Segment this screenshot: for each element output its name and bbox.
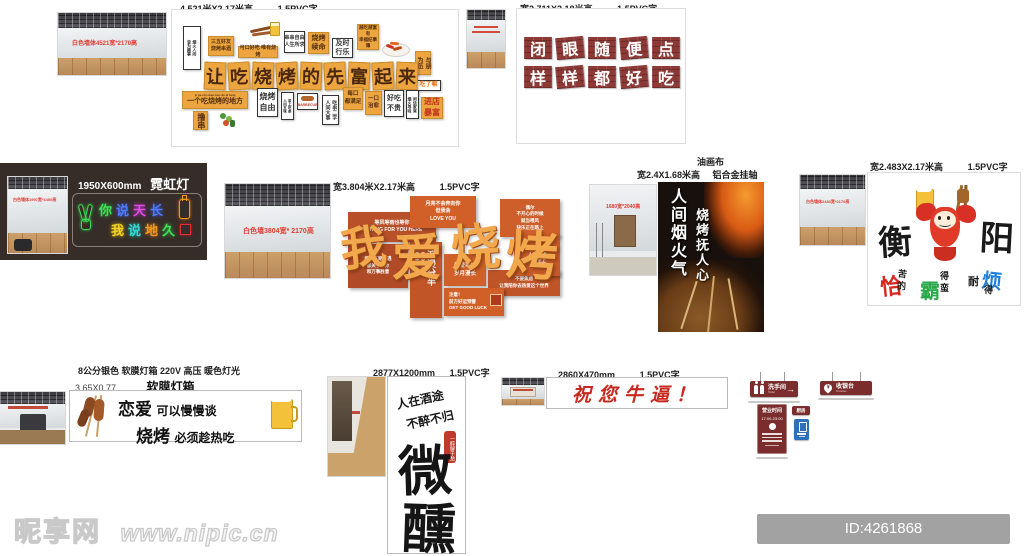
wall-a-photo: 白色墙体4521宽*2170高 <box>58 13 166 75</box>
door-icon <box>799 422 807 432</box>
slogan-char: 耐 <box>968 273 979 289</box>
flame <box>704 182 764 258</box>
toilet-label-en: Toilet <box>768 391 786 394</box>
neon-char: 你 <box>99 200 112 219</box>
toilet-sign: 洗手间 Toilet → <box>750 381 798 397</box>
wall-d-header: 宽3.804米X2.17米高 1.5PVC字 <box>333 180 480 193</box>
poster-col2: 烧烤抚人心 <box>692 208 711 283</box>
tile: 吃了嘛 <box>416 80 441 91</box>
wall-d-material: 1.5PVC字 <box>440 182 480 192</box>
brick-char: 点 <box>652 37 680 59</box>
beer-mug-icon <box>271 399 293 429</box>
tile: 烟火人间 皆为趣事 <box>183 26 201 70</box>
counter-sign: ¥ 收银台 Counter <box>820 381 872 395</box>
wall-b-design: 闭 眼 随 便 点 样 样 都 好 吃 <box>517 9 685 143</box>
photo-note: 白色墙体1997宽*1400高 <box>13 197 61 203</box>
skewers-beer-image <box>248 20 280 40</box>
tile: 闲话家常 烟火寻味 <box>406 90 419 119</box>
blue-door-sign <box>794 419 809 440</box>
neon-char: 我 <box>111 220 124 239</box>
brick-char: 闭 <box>524 37 552 59</box>
wainscot <box>58 58 166 75</box>
tile: 炭上吃串 人间五味 <box>281 92 294 120</box>
hengyang-char-right: 阳 <box>979 210 1016 261</box>
kitchen-label: 厨房 <box>797 408 806 414</box>
main-char: 吃 <box>227 61 250 90</box>
wall-d-size: 宽3.804米X2.17米高 <box>333 182 415 192</box>
tile-text: BARBECUE <box>298 103 318 108</box>
lightbox-text: 恋爱 可以慢慢谈 烧烤 必须趁热吃 <box>118 395 268 447</box>
poster-mount: 铝合金挂轴 <box>713 170 758 180</box>
stock-id-bar: ID:4261868 NO:20250815155821504101 <box>757 514 1010 544</box>
brick-char: 随 <box>588 37 616 59</box>
wall-a-main-row: 让 吃 烧 烤 的 先 富 起 来 <box>204 62 418 90</box>
vegetable-skewers-image <box>218 111 238 129</box>
hengyang-photo: 白色墙体2483宽*2170高 <box>800 175 865 245</box>
big-char: 烤 <box>504 213 560 291</box>
main-char: 烧 <box>252 62 275 91</box>
neon-char: 地 <box>145 220 158 239</box>
wall-b-row2: 样 样 都 好 吃 <box>524 66 684 88</box>
photo-note: 白色墙体4521宽*2170高 <box>72 38 137 47</box>
design-sheet: 4.521米X2.17米高 1.5PVC字 白色墙体4521宽*2170高 烟火… <box>0 0 1024 556</box>
male-icon <box>754 385 758 394</box>
main-char: 让 <box>204 62 227 91</box>
photo-note: 白色墙体2483宽*2170高 <box>806 199 849 205</box>
yuan-symbol: ¥ <box>827 385 830 391</box>
main-char: 烤 <box>275 61 298 90</box>
neon-name: 霓虹灯 <box>150 177 189 192</box>
photo-object <box>14 239 32 251</box>
neon-char: 天 <box>133 200 146 219</box>
neon-sign: 你 说 天 长 我 说 地 久 <box>72 193 202 247</box>
weixun-design: 人在酒途 不醉不归 一醉解千愁 微 醺 <box>388 377 465 553</box>
weixun-photo <box>328 377 385 476</box>
neon-line1: 你 说 天 长 <box>99 200 163 219</box>
wall-b-photo <box>467 10 505 68</box>
photo-note: 1680宽*2040高 <box>606 203 640 210</box>
bottle-icon <box>179 199 190 219</box>
main-char: 起 <box>371 61 394 90</box>
photo-sign <box>510 387 536 397</box>
neon-char: 说 <box>128 220 141 239</box>
watermark-url: www.nipic.cn <box>121 520 279 546</box>
lightbox-header1: 8公分银色 软膜灯箱 220V 高压 暖色灯光 <box>78 364 240 377</box>
wall-b-row1: 闭 眼 随 便 点 <box>524 37 684 59</box>
crawfish-illustration <box>914 181 976 265</box>
tile: 一口 治愈 <box>365 91 382 115</box>
lightbox-line2-big: 烧烤 <box>136 427 170 446</box>
logo-circle-icon <box>769 423 776 430</box>
tile: 烧烤 续命 <box>308 32 329 54</box>
brick-char: 样 <box>555 65 585 89</box>
hengyang-size: 宽2.483X2.17米高 <box>870 162 943 172</box>
hengyang-design: 衡 阳 恰 苦 的 霸 得 蛮 <box>868 173 1020 305</box>
poster-header1: 油画布 <box>697 155 724 168</box>
niubi-text: 祝您牛逼！ <box>572 380 702 407</box>
tile: 越吃越富有 幸福纪事簿 <box>357 24 379 50</box>
neon-photo: 白色墙体1997宽*1400高 <box>8 177 67 253</box>
poster-size: 宽2.4X1.68米高 <box>637 170 700 180</box>
hengyang-header: 宽2.483X2.17米高 1.5PVC字 <box>870 160 1008 173</box>
brick-char: 样 <box>524 66 552 88</box>
lightbox-photo <box>0 392 65 444</box>
brick-char: 便 <box>619 36 649 60</box>
niubi-design: 祝您牛逼！ <box>547 378 727 408</box>
poster-col1: 人间烟火气 <box>664 188 688 278</box>
brick-char: 吃 <box>652 66 680 88</box>
tile: 烧烤 自由 <box>257 88 278 117</box>
crawfish-face <box>934 211 956 229</box>
tile: BARBECUE <box>297 93 318 110</box>
wall-a-design: 烟火人间 皆为趣事 三五好友 烧烤串酒 可口好吃 唯有烧烤 串串自由 人生所求 … <box>172 10 458 146</box>
tile: 每口 都满足 <box>343 87 363 110</box>
slogan-char: 的 <box>897 279 906 292</box>
neon-seal-icon <box>180 224 191 235</box>
sausage-icon <box>301 96 314 101</box>
tile: 三五好友 烧烤串酒 <box>208 36 234 56</box>
hengyang-slogan: 恰 苦 的 霸 得 蛮 耐 烦 得 <box>880 269 1010 301</box>
tile-text: 一个吃烧烤的地方 <box>187 97 243 106</box>
photo-sign <box>474 26 498 28</box>
tile: 可口好吃 唯有烧烤 <box>238 46 278 58</box>
hengyang-material: 1.5PVC字 <box>968 162 1008 172</box>
victory-hand-icon <box>78 202 92 232</box>
ceiling <box>58 13 166 28</box>
hengyang-char-left: 衡 <box>876 214 913 265</box>
watermark: 昵享网 www.nipic.cn <box>14 510 279 549</box>
tile: 及时 行乐 <box>332 38 353 58</box>
slogan-char: 蛮 <box>940 281 949 294</box>
photo-board <box>614 215 636 247</box>
lightbox-design: 恋爱 可以慢慢谈 烧烤 必须趁热吃 <box>70 391 301 441</box>
tile: 串串自由 人生所求 <box>284 31 305 53</box>
chili-plate-image <box>380 37 410 58</box>
lightbox-line1-big: 恋爱 <box>118 400 152 419</box>
neon-char: 长 <box>150 200 163 219</box>
neon-char: 说 <box>116 200 129 219</box>
hours-title: 营业时间 <box>762 407 782 414</box>
big-char: 爱 <box>392 218 442 290</box>
brick-char: 眼 <box>555 36 585 60</box>
poster-design: 人间烟火气 烧烤抚人心 <box>658 182 764 332</box>
big-char: 我 <box>337 210 390 280</box>
main-char: 的 <box>300 62 323 91</box>
tile: 吃串二字 人间大事 <box>322 95 339 125</box>
brick-char: 好 <box>619 65 649 89</box>
neon-line2: 我 说 地 久 <box>111 220 175 239</box>
slogan-char: 霸 <box>920 275 940 304</box>
hours-time: 17:00-23:00 <box>761 416 782 421</box>
location-pin-icon: ¥ <box>822 382 833 393</box>
photo-note: 白色墙3804宽* 2170高 <box>243 226 314 236</box>
watermark-site: 昵享网 <box>14 517 101 547</box>
lightbox-line2-rest: 必须趁热吃 <box>174 431 234 445</box>
tile: 好吃 不贵 <box>384 90 404 117</box>
crawfish-tail <box>934 247 956 261</box>
neon-char: 久 <box>162 220 175 239</box>
tile: 撸串 <box>193 111 208 130</box>
arrow-right-icon: → <box>786 384 795 394</box>
kitchen-sign: 厨房 <box>792 406 810 415</box>
beer-glass-icon <box>270 22 280 36</box>
poster-header2: 宽2.4X1.68米高 铝合金挂轴 <box>637 168 758 181</box>
lightbox-line1-rest: 可以慢慢谈 <box>156 404 216 418</box>
weixun-big2: 醺 <box>401 484 458 556</box>
niubi-photo <box>502 378 544 405</box>
wall-d-photo: 白色墙3804宽* 2170高 <box>225 184 330 278</box>
main-char: 来 <box>396 62 419 91</box>
tile: 进店 暴富 <box>421 97 443 119</box>
neon-size: 1950X600mm <box>78 181 141 192</box>
female-icon <box>760 385 764 394</box>
neon-panel: 白色墙体1997宽*1400高 1950X600mm 霓虹灯 你 说 天 长 我 <box>0 163 207 260</box>
skewers-image <box>74 393 112 439</box>
poster-photo: 1680宽*2040高 <box>590 185 656 275</box>
big-char: 烧 <box>448 206 503 281</box>
business-hours-sign: 营业时间 17:00-23:00 <box>757 404 787 454</box>
counter-label-en: Counter <box>836 390 854 393</box>
neon-title: 1950X600mm 霓虹灯 <box>78 174 189 193</box>
wall-d-design: 等风等雨也等你 WAITING FOR YOU HERE 月亮不会奔向你 但我会… <box>348 196 560 318</box>
luck-seal-icon <box>490 294 502 306</box>
brick-char: 都 <box>588 66 616 88</box>
tile: yi ge chi shao kao de di fang 一个吃烧烤的地方 <box>182 91 248 109</box>
photo-doorway <box>332 381 352 441</box>
slogan-char: 得 <box>984 283 993 296</box>
